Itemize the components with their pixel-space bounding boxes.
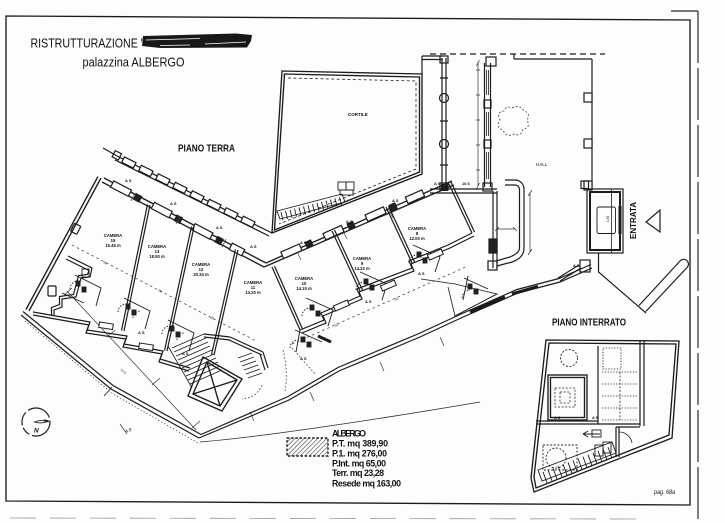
svg-text:14.15 m: 14.15 m: [296, 286, 312, 291]
svg-text:A S: A S: [592, 416, 599, 420]
svg-text:Resede mq 163,00: Resede mq 163,00: [332, 478, 401, 488]
svg-text:15.45 m: 15.45 m: [105, 243, 121, 248]
svg-text:14.22 m: 14.22 m: [354, 266, 370, 271]
svg-text:RISTRUTTURAZIONE ": RISTRUTTURAZIONE ": [31, 36, 145, 51]
svg-text:20.34 m: 20.34 m: [193, 272, 209, 277]
svg-text:palazzina ALBERGO: palazzina ALBERGO: [83, 56, 185, 70]
svg-text:A S: A S: [418, 271, 425, 276]
svg-text:P.1. mq 276,00: P.1. mq 276,00: [332, 448, 387, 458]
svg-text:P.Int. mq 65,00: P.Int. mq 65,00: [332, 458, 386, 468]
svg-text:A S: A S: [346, 219, 353, 224]
svg-text:A S: A S: [365, 299, 372, 304]
svg-text:PIANO INTERRATO: PIANO INTERRATO: [552, 318, 626, 329]
svg-text:ENTRATA: ENTRATA: [629, 202, 638, 239]
svg-text:A S: A S: [300, 356, 307, 361]
svg-text:A S: A S: [392, 198, 399, 203]
svg-text:A S: A S: [125, 178, 132, 183]
svg-text:HALL: HALL: [536, 162, 548, 167]
svg-text:N: N: [34, 428, 39, 435]
svg-text:ALBERGO: ALBERGO: [332, 428, 366, 438]
svg-text:A S: A S: [250, 244, 257, 249]
svg-text:PIANO TERRA: PIANO TERRA: [178, 144, 235, 155]
svg-text:pag. 68a: pag. 68a: [653, 489, 675, 496]
svg-text:A S: A S: [300, 240, 307, 245]
svg-text:18.50 m: 18.50 m: [149, 254, 165, 259]
svg-text:P.T. mq 389,90: P.T. mq 389,90: [332, 438, 388, 448]
svg-text:A S: A S: [216, 225, 223, 230]
svg-text:A S: A S: [170, 201, 177, 206]
svg-text:12.00 m: 12.00 m: [409, 236, 425, 241]
svg-text:1.50: 1.50: [606, 216, 610, 222]
svg-text:16 6: 16 6: [462, 181, 471, 186]
svg-text:13.20 m: 13.20 m: [245, 290, 261, 295]
svg-text:A S: A S: [138, 330, 145, 335]
svg-text:CORTILE: CORTILE: [348, 112, 368, 117]
svg-text:A S: A S: [554, 416, 561, 420]
svg-text:Terr. mq 23,28: Terr. mq 23,28: [332, 468, 384, 478]
